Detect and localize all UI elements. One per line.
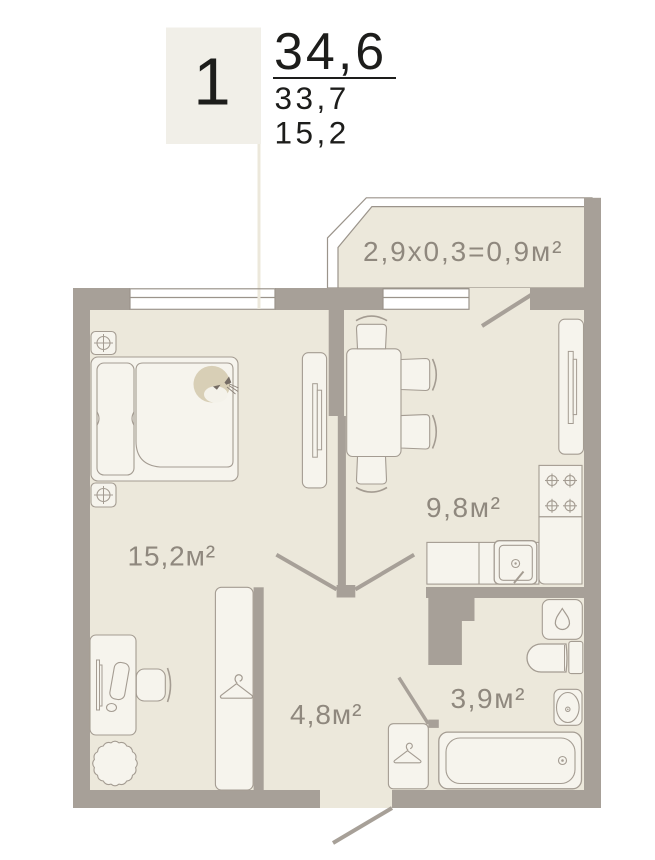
svg-text:15,2м²: 15,2м²	[128, 541, 216, 572]
svg-text:1: 1	[193, 45, 230, 120]
svg-text:33,7: 33,7	[275, 80, 350, 116]
svg-text:4,8м²: 4,8м²	[290, 699, 363, 730]
svg-text:34,6: 34,6	[274, 23, 387, 81]
svg-text:9,8м²: 9,8м²	[426, 492, 502, 523]
svg-text:2,9х0,3=0,9м²: 2,9х0,3=0,9м²	[363, 236, 563, 267]
svg-text:15,2: 15,2	[275, 115, 350, 151]
svg-text:3,9м²: 3,9м²	[451, 683, 527, 714]
